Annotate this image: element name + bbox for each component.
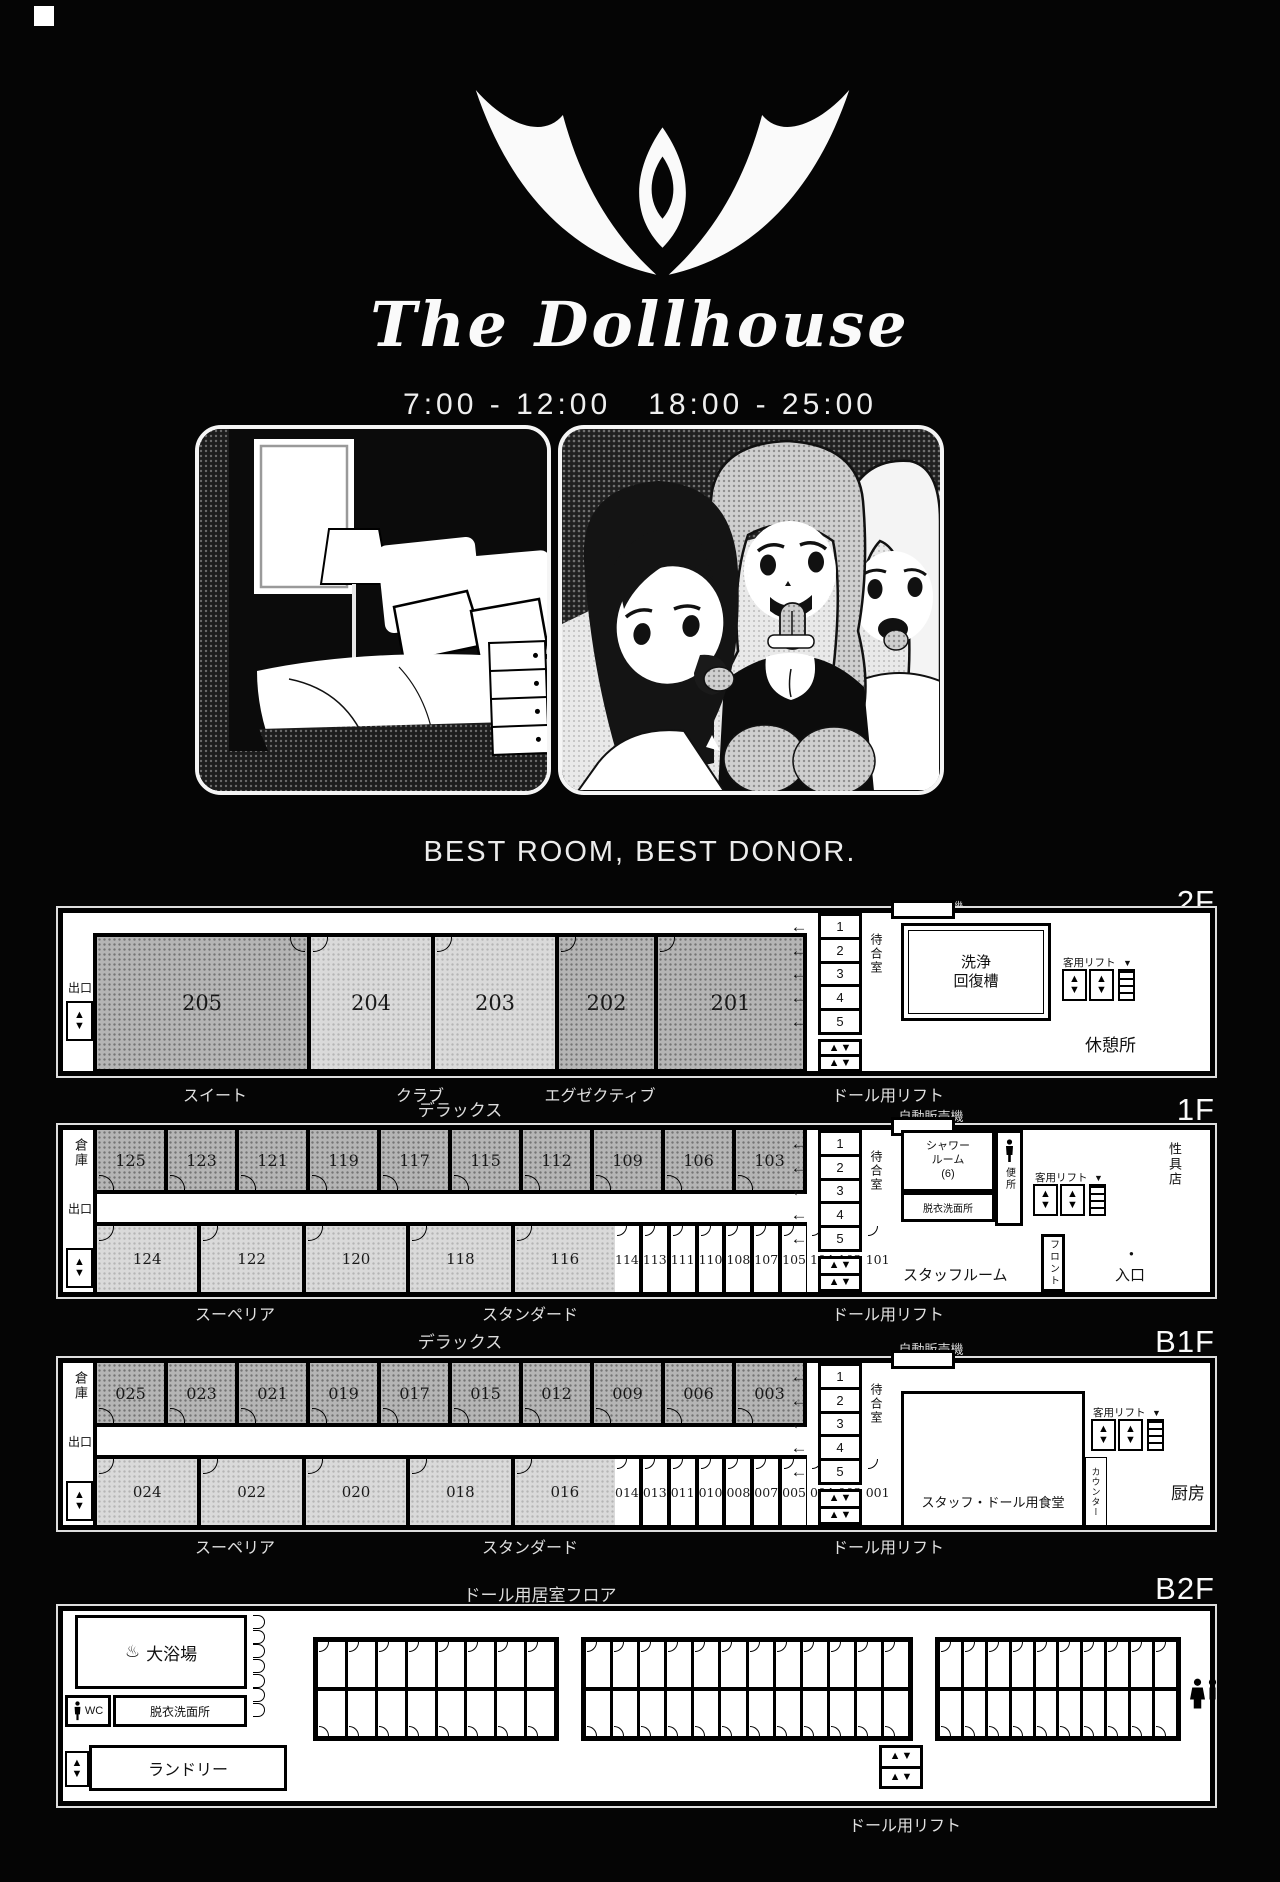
standard-rooms-b1f: 014 013 011 010 008 007 005 004 002 001 [615,1455,807,1525]
room-number: 110 [699,1252,723,1267]
capsule-room [1107,1691,1128,1736]
capsule-room [640,1642,664,1687]
stall-number: 1 [836,1369,843,1384]
capsule-room [640,1691,664,1736]
guest-elevator-icon: ▲ ▼ [1089,969,1114,1001]
stall-number: 1 [836,919,843,934]
down-triangle-icon: ▼ [902,1772,913,1783]
down-triangle-icon: ▼ [841,1277,852,1288]
capsule-room [964,1642,985,1687]
guest-room: 113 [643,1226,667,1292]
category-deluxe-1f: デラックス [375,1096,545,1121]
left-arrow-icon: ← [791,1159,808,1176]
room-number: 205 [182,991,222,1015]
capsule-room [803,1642,827,1687]
up-triangle-icon: ▲ [829,1043,840,1054]
entrance-label: 入口 [1115,1264,1145,1285]
doll-lift-icon-b2f: ▲ ▼ ▲ ▼ [879,1745,923,1789]
doll-lift-cell: ▲ ▼ [821,1492,859,1506]
capsule-room [467,1691,494,1736]
stall-number: 2 [836,943,843,958]
doll-lift-icon-b1f: ▲ ▼ ▲ ▼ [818,1489,862,1525]
guest-room: 111 [671,1226,695,1292]
capsule-room [1012,1642,1033,1687]
capsule-room [497,1691,524,1736]
guest-room: 023 [168,1363,235,1423]
stairs-icon [1147,1419,1164,1451]
guest-room: 022 [201,1459,301,1525]
storage-label-b1f: 倉庫 [71,1371,90,1401]
floorplan-2f: 出口 ▲ ▼ 205 204 203 202 201 ←←←←← 1 [58,908,1215,1076]
capsule-room [613,1691,637,1736]
shower-stalls-column [253,1615,275,1717]
guest-room: 016 [515,1459,615,1525]
guest-room: 101 [866,1226,890,1292]
stall-arc-icon [253,1703,265,1717]
shower-room: シャワー ルーム (6) [901,1130,995,1192]
down-triangle-icon: ▼ [841,1260,852,1271]
room-number: 010 [699,1485,723,1500]
washing-tank-room: 洗浄 回復槽 [901,923,1051,1021]
doll-floor-title: ドール用居室フロア [430,1581,650,1606]
toilet-strip: 便所 [995,1130,1023,1226]
guest-room: 205 [97,937,307,1069]
floor-tag-b1f: B1F [1090,1324,1215,1360]
guest-lift-label-1f: 客用リフト [1035,1170,1088,1185]
onsen-icon: ♨ [125,1642,140,1662]
floor-tag-b2f: B2F [1090,1571,1215,1607]
guest-lift-label-b1f: 客用リフト [1093,1405,1146,1420]
guest-lift-label-2f: 客用リフト [1063,955,1116,970]
tagline: BEST ROOM, BEST DONOR. [0,836,1280,869]
exit-label: 出口 [68,979,92,996]
waiting-stalls-b1f: 1 2 3 4 5 [818,1363,862,1485]
waiting-stall: 2 [821,940,859,961]
waiting-room-label-1f: 待合室 [868,1150,885,1192]
down-triangle-icon: ▼ [74,1501,85,1512]
category-deluxe-b1f: デラックス [375,1328,545,1353]
floorplan-b2f: ♨ 大浴場 WC 脱衣洗面所 ランドリー ▲ ▼ [58,1606,1215,1806]
room-number: 201 [710,991,750,1015]
guest-room: 010 [699,1459,723,1525]
capsule-room [318,1691,345,1736]
room-number: 105 [782,1252,806,1267]
stall-number: 4 [836,1207,843,1222]
left-arrow-icon: ← [791,1368,808,1385]
guest-elevator-icon: ▲ ▼ [1060,1184,1085,1216]
front-desk-label: フロント [1046,1239,1061,1287]
stall-number: 3 [836,966,843,981]
guest-room: 116 [515,1226,615,1292]
capsule-room [378,1642,405,1687]
room-number: 121 [257,1151,288,1170]
capsule-block-2 [581,1637,913,1741]
down-triangle-icon: ▼ [1040,1200,1051,1211]
room-number: 011 [671,1485,695,1500]
waiting-room-label-2f: 待合室 [868,933,885,975]
doll-lift-icon-1f: ▲ ▼ ▲ ▼ [818,1256,862,1292]
doll-lift-cell: ▲ ▼ [882,1769,920,1787]
capsule-room [1036,1691,1057,1736]
canteen-label: スタッフ・ドール用食堂 [921,1492,1064,1511]
capsule-room [408,1642,435,1687]
waiting-stall: 3 [821,1414,859,1435]
exit-label: 出口 [68,1200,92,1217]
room-number: 023 [186,1384,217,1403]
waiting-stall: 5 [821,1228,859,1249]
capsule-room [964,1691,985,1736]
left-arrow-icon: ← [791,1463,808,1480]
waiting-stall: 5 [821,1011,859,1032]
shower-line1: シャワー [926,1140,970,1154]
room-number: 116 [551,1250,580,1268]
guest-room: 201 [658,937,803,1069]
opening-hours: 7:00 - 12:00 18:00 - 25:00 [0,388,1280,422]
guest-room: 114 [615,1226,639,1292]
left-arrow-icon: ← [791,1439,808,1456]
guest-elevator-icon: ▲ ▼ [1118,1419,1143,1451]
room-number: 106 [683,1151,714,1170]
stairs-icon [1118,969,1135,1001]
doll-lift-cell: ▲ ▼ [821,1259,859,1273]
capsule-room [318,1642,345,1687]
rest-area-label: 休憩所 [1085,1031,1136,1056]
capsule-room [694,1691,718,1736]
toilet-label: 便所 [1002,1167,1017,1191]
capsule-room [803,1691,827,1736]
up-triangle-icon: ▲ [829,1260,840,1271]
room-number: 005 [782,1485,806,1500]
room-number: 114 [615,1252,639,1267]
guest-room: 109 [594,1130,661,1190]
down-triangle-icon: ▼ [74,1021,85,1032]
dressing-label-b2f: 脱衣洗面所 [150,1703,210,1720]
dollhouse-logo-icon [455,78,870,293]
deluxe-rooms-b1f: 025 023 021 019 017 015 012 009 006 003 [93,1363,807,1427]
guest-room: 012 [523,1363,590,1423]
room-number: 021 [257,1384,288,1403]
category-standard-1f: スタンダード [455,1301,605,1325]
room-number: 012 [541,1384,572,1403]
capsule-room [857,1642,881,1687]
stall-number: 3 [836,1416,843,1431]
room-number: 103 [754,1151,785,1170]
capsule-room [438,1642,465,1687]
laundry-label: ランドリー [148,1756,228,1780]
room-number: 015 [470,1384,501,1403]
room-number: 020 [342,1483,371,1501]
capsule-block-3 [935,1637,1181,1741]
donors-photo [558,425,944,795]
down-triangle-icon: ▼ [1125,1435,1136,1446]
up-triangle-icon: ▲ [829,1058,840,1069]
capsule-room [586,1691,610,1736]
deluxe-rooms-1f: 125 123 121 119 117 115 112 109 106 103 [93,1130,807,1194]
washing-tank-line1: 洗浄 [961,953,991,973]
wc-label: WC [85,1705,103,1717]
front-desk: フロント [1041,1234,1065,1292]
guest-room: 108 [726,1226,750,1292]
capsule-room [667,1642,691,1687]
down-triangle-icon: ▼ [902,1751,913,1762]
page: The Dollhouse 7:00 - 12:00 18:00 - 25:00 [0,0,1280,1882]
washing-tank-line2: 回復槽 [953,972,998,992]
room-number: 118 [446,1250,475,1268]
room-number: 007 [754,1485,778,1500]
guest-room: 009 [594,1363,661,1423]
room-number: 025 [115,1384,146,1403]
bedroom-photo [195,425,551,795]
waiting-stalls-1f: 1 2 3 4 5 [818,1130,862,1252]
room-number: 122 [237,1250,266,1268]
stairs-down-icon: ▼ [1094,1174,1103,1183]
vending-machine-niche [891,1350,955,1369]
capsule-room [613,1642,637,1687]
capsule-room [586,1642,610,1687]
room-number: 120 [342,1250,371,1268]
capsule-room [1155,1642,1176,1687]
guest-elevator-icon: ▲ ▼ [1062,969,1087,1001]
capsule-room [497,1642,524,1687]
laundry-room: ランドリー [89,1745,287,1791]
left-arrow-icon: ← [791,1013,808,1030]
guest-room: 013 [643,1459,667,1525]
left-arrow-icon: ← [791,989,808,1006]
stairs-icon [1089,1184,1106,1216]
capsule-room [776,1642,800,1687]
capsule-room [749,1642,773,1687]
room-number: 203 [475,991,515,1015]
category-superior-b1f: スーペリア [160,1534,310,1558]
down-triangle-icon: ▼ [72,1769,83,1780]
corner-mark [34,6,54,26]
capsule-room [1036,1642,1057,1687]
stall-arc-icon [253,1615,265,1629]
doll-lift-label-b2f: ドール用リフト [830,1812,980,1836]
guest-room: 018 [410,1459,510,1525]
waiting-stall: 2 [821,1157,859,1178]
guest-room: 123 [168,1130,235,1190]
doll-lift-cell: ▲ ▼ [882,1748,920,1766]
left-arrow-icon: ← [791,1230,808,1247]
room-number: 204 [351,991,391,1015]
room-number: 119 [328,1151,359,1170]
room-number: 003 [754,1384,785,1403]
stall-number: 4 [836,1440,843,1455]
room-number: 101 [866,1252,890,1267]
capsule-room [1059,1642,1080,1687]
room-number: 202 [586,991,626,1015]
canteen-room: スタッフ・ドール用食堂 [901,1391,1085,1525]
left-arrow-icon: ← [791,1206,808,1223]
room-number: 016 [551,1483,580,1501]
down-triangle-icon: ▼ [841,1510,852,1521]
dressing-room-1f: 脱衣洗面所 [901,1192,995,1222]
room-number: 111 [671,1252,695,1267]
room-number: 018 [446,1483,475,1501]
elevator-icon: ▲ ▼ [66,1001,93,1041]
guest-room: 125 [97,1130,164,1190]
capsule-room [348,1691,375,1736]
guest-room: 001 [866,1459,890,1525]
counter-label: カウンター [1090,1467,1103,1517]
capsule-room [749,1691,773,1736]
storage-label-1f: 倉庫 [71,1138,90,1168]
capsule-room [1155,1691,1176,1736]
capsule-room [527,1642,554,1687]
stall-arc-icon [253,1674,265,1688]
door-pivot-dot: ● [1129,1250,1134,1258]
capsule-room [988,1642,1009,1687]
guest-room: 204 [311,937,431,1069]
wc-room: WC [65,1695,111,1727]
dressing-label: 脱衣洗面所 [923,1200,973,1215]
bath-label: 大浴場 [146,1640,197,1665]
guest-room: 011 [671,1459,695,1525]
guest-room: 014 [615,1459,639,1525]
guest-room: 112 [523,1130,590,1190]
capsule-room [408,1691,435,1736]
left-arrow-icon: ← [791,1392,808,1409]
capsule-room [527,1691,554,1736]
guest-room: 024 [97,1459,197,1525]
person-icon [1004,1139,1015,1163]
left-arrow-icon: ← [791,942,808,959]
bath-room: ♨ 大浴場 [75,1615,247,1689]
doll-lift-icon-2f: ▲ ▼ ▲ ▼ [818,1039,862,1072]
stairs-down-icon: ▼ [1152,1409,1161,1418]
capsule-room [1059,1691,1080,1736]
room-number: 017 [399,1384,430,1403]
left-arrow-icon: ← [791,1135,808,1152]
room-number: 115 [470,1151,501,1170]
room-number: 014 [615,1485,639,1500]
room-number: 008 [726,1485,750,1500]
capsule-room [857,1691,881,1736]
guest-room: 015 [452,1363,519,1423]
stall-arrows-1f: ←←←←← [785,1132,813,1250]
room-number: 112 [541,1151,572,1170]
up-triangle-icon: ▲ [890,1772,901,1783]
room-number: 006 [683,1384,714,1403]
doll-lift-label-1f: ドール用リフト [813,1301,963,1325]
doll-lift-label-2f: ドール用リフト [813,1082,963,1106]
guest-room: 117 [381,1130,448,1190]
up-triangle-icon: ▲ [829,1277,840,1288]
guest-room: 021 [239,1363,306,1423]
guest-room: 020 [306,1459,406,1525]
guest-room: 115 [452,1130,519,1190]
waiting-stall: 1 [821,916,859,937]
stall-number: 5 [836,1464,843,1479]
capsule-room [940,1691,961,1736]
room-number: 022 [237,1483,266,1501]
waiting-stall: 5 [821,1461,859,1482]
guest-room: 124 [97,1226,197,1292]
capsule-room [1131,1642,1152,1687]
guest-rooms-2f: 205 204 203 202 201 [93,933,807,1073]
superior-rooms-1f: 124 122 120 118 116 [93,1222,615,1292]
up-triangle-icon: ▲ [829,1493,840,1504]
down-triangle-icon: ▼ [841,1043,852,1054]
shower-line2: ルーム [932,1154,965,1168]
capsule-room [940,1642,961,1687]
restroom-mf-icon [1187,1677,1223,1713]
capsule-room [988,1691,1009,1736]
down-triangle-icon: ▼ [841,1493,852,1504]
waiting-stall: 4 [821,987,859,1008]
capsule-room [721,1691,745,1736]
room-number: 125 [115,1151,146,1170]
stall-number: 2 [836,1160,843,1175]
waiting-stall: 3 [821,964,859,985]
room-number: 107 [754,1252,778,1267]
kitchen-label: 厨房 [1171,1479,1205,1504]
guest-room: 006 [665,1363,732,1423]
stall-number: 4 [836,990,843,1005]
stall-number: 3 [836,1183,843,1198]
guest-room: 110 [699,1226,723,1292]
left-arrow-icon: ← [791,1415,808,1432]
down-triangle-icon: ▼ [1067,1200,1078,1211]
shower-line3: (6) [941,1168,954,1182]
down-triangle-icon: ▼ [1098,1435,1109,1446]
guest-room: 007 [754,1459,778,1525]
stall-arc-icon [253,1659,265,1673]
guest-room: 121 [239,1130,306,1190]
capsule-room [438,1691,465,1736]
stall-number: 5 [836,1231,843,1246]
stairs-down-icon: ▼ [1123,959,1132,968]
floorplan-1f: 倉庫 125 123 121 119 117 115 112 109 106 [58,1125,1215,1297]
up-triangle-icon: ▲ [890,1751,901,1762]
guest-room: 202 [559,937,654,1069]
staff-room-label: スタッフルーム [903,1264,1008,1285]
capsule-room [830,1642,854,1687]
doll-lift-label-b1f: ドール用リフト [813,1534,963,1558]
room-number: 019 [328,1384,359,1403]
category-standard-b1f: スタンダード [455,1534,605,1558]
category-suite: スイート [140,1082,290,1106]
left-arrow-icon: ← [791,918,808,935]
room-number: 113 [643,1252,667,1267]
doll-lift-cell: ▲ ▼ [821,1057,859,1069]
capsule-room [667,1691,691,1736]
room-number: 109 [612,1151,643,1170]
brand-title: The Dollhouse [0,288,1280,361]
elevator-icon: ▲ ▼ [65,1751,89,1787]
room-number: 024 [133,1483,162,1501]
guest-room: 203 [435,937,555,1069]
elevator-icon: ▲ ▼ [66,1248,93,1288]
capsule-block-1 [313,1637,559,1741]
doll-lift-cell: ▲ ▼ [821,1276,859,1290]
waiting-stall: 1 [821,1366,859,1387]
down-triangle-icon: ▼ [74,1268,85,1279]
guest-elevator-icon: ▲ ▼ [1033,1184,1058,1216]
capsule-room [1083,1642,1104,1687]
capsule-room [467,1642,494,1687]
capsule-room [776,1691,800,1736]
guest-room: 019 [310,1363,377,1423]
elevator-icon: ▲ ▼ [66,1481,93,1521]
guest-elevator-icon: ▲ ▼ [1091,1419,1116,1451]
floorplan-b1f: 倉庫 025 023 021 019 017 015 012 009 006 [58,1358,1215,1530]
capsule-room [1083,1691,1104,1736]
stall-arrows-2f: ←←←←← [785,915,813,1033]
room-number: 123 [186,1151,217,1170]
down-triangle-icon: ▼ [1069,985,1080,996]
